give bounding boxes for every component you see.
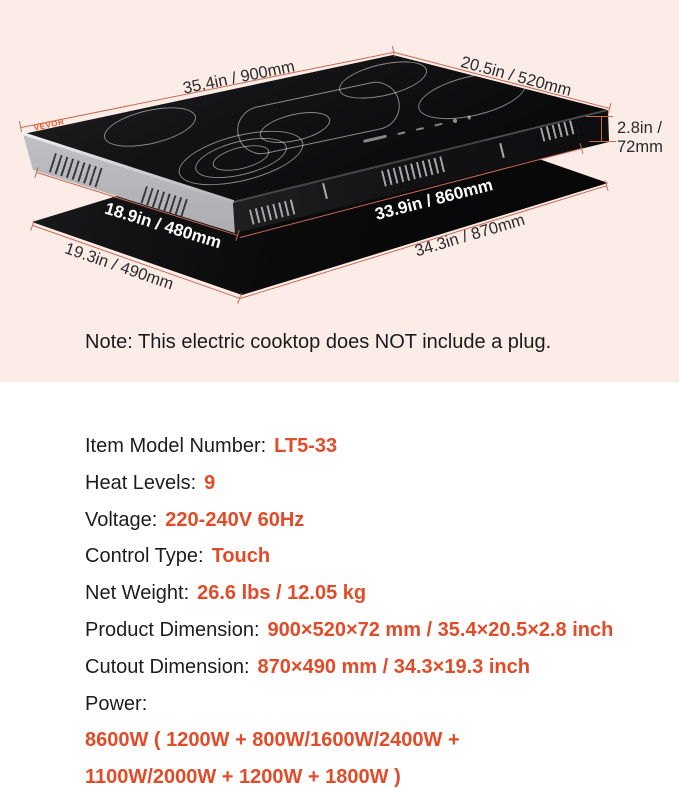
spec-label: Heat Levels: [85,472,196,494]
spec-label: Cutout Dimension: [85,656,250,678]
spec-value: 26.6 lbs / 12.05 kg [197,582,366,604]
spec-list: Item Model Number:LT5-33 Heat Levels:9 V… [85,428,645,788]
spec-value: 870×490 mm / 34.3×19.3 inch [258,656,530,678]
spec-value: 220-240V 60Hz [165,509,304,531]
dim-line-72-vertical [601,117,602,141]
dim-tick [608,103,612,114]
dimension-label-72-line1: 2.8in / [617,119,663,138]
dimension-label-72: 2.8in / 72mm [617,119,663,157]
spec-row-voltage: Voltage:220-240V 60Hz [85,502,645,539]
spec-row-power: Power: [85,686,645,723]
spec-label: Control Type: [85,545,204,567]
spec-row-product-dimension: Product Dimension:900×520×72 mm / 35.4×2… [85,612,645,649]
dim-line-72-top [586,116,613,117]
spec-row-heat-levels: Heat Levels:9 [85,465,645,502]
dim-line-72-bottom [589,141,616,142]
power-detail-line-2: 1100W/2000W + 1200W + 1800W ) [85,759,645,788]
dim-tick [604,180,609,191]
spec-value: Touch [212,545,271,567]
product-dimension-infographic: VEVOR 35.4in / 900mm 20.5in / 520mm 2.8i… [0,0,679,788]
spec-label: Voltage: [85,509,157,531]
spec-value: 9 [204,472,215,494]
spec-value: 900×520×72 mm / 35.4×20.5×2.8 inch [268,619,614,641]
dimension-diagram: VEVOR 35.4in / 900mm 20.5in / 520mm 2.8i… [0,0,679,382]
power-key [467,115,471,119]
spec-row-net-weight: Net Weight:26.6 lbs / 12.05 kg [85,575,645,612]
spec-row-control-type: Control Type:Touch [85,538,645,575]
spec-label: Net Weight: [85,582,189,604]
plug-note: Note: This electric cooktop does NOT inc… [85,331,551,354]
spec-value: LT5-33 [274,435,337,457]
power-detail-line-1: 8600W ( 1200W + 800W/1600W/2400W + [85,722,645,759]
spec-row-model: Item Model Number:LT5-33 [85,428,645,465]
spec-label: Power: [85,693,147,715]
dimension-label-72-line2: 72mm [617,138,663,157]
spec-label: Item Model Number: [85,435,266,457]
spec-label: Product Dimension: [85,619,260,641]
spec-row-cutout-dimension: Cutout Dimension:870×490 mm / 34.3×19.3 … [85,649,645,686]
